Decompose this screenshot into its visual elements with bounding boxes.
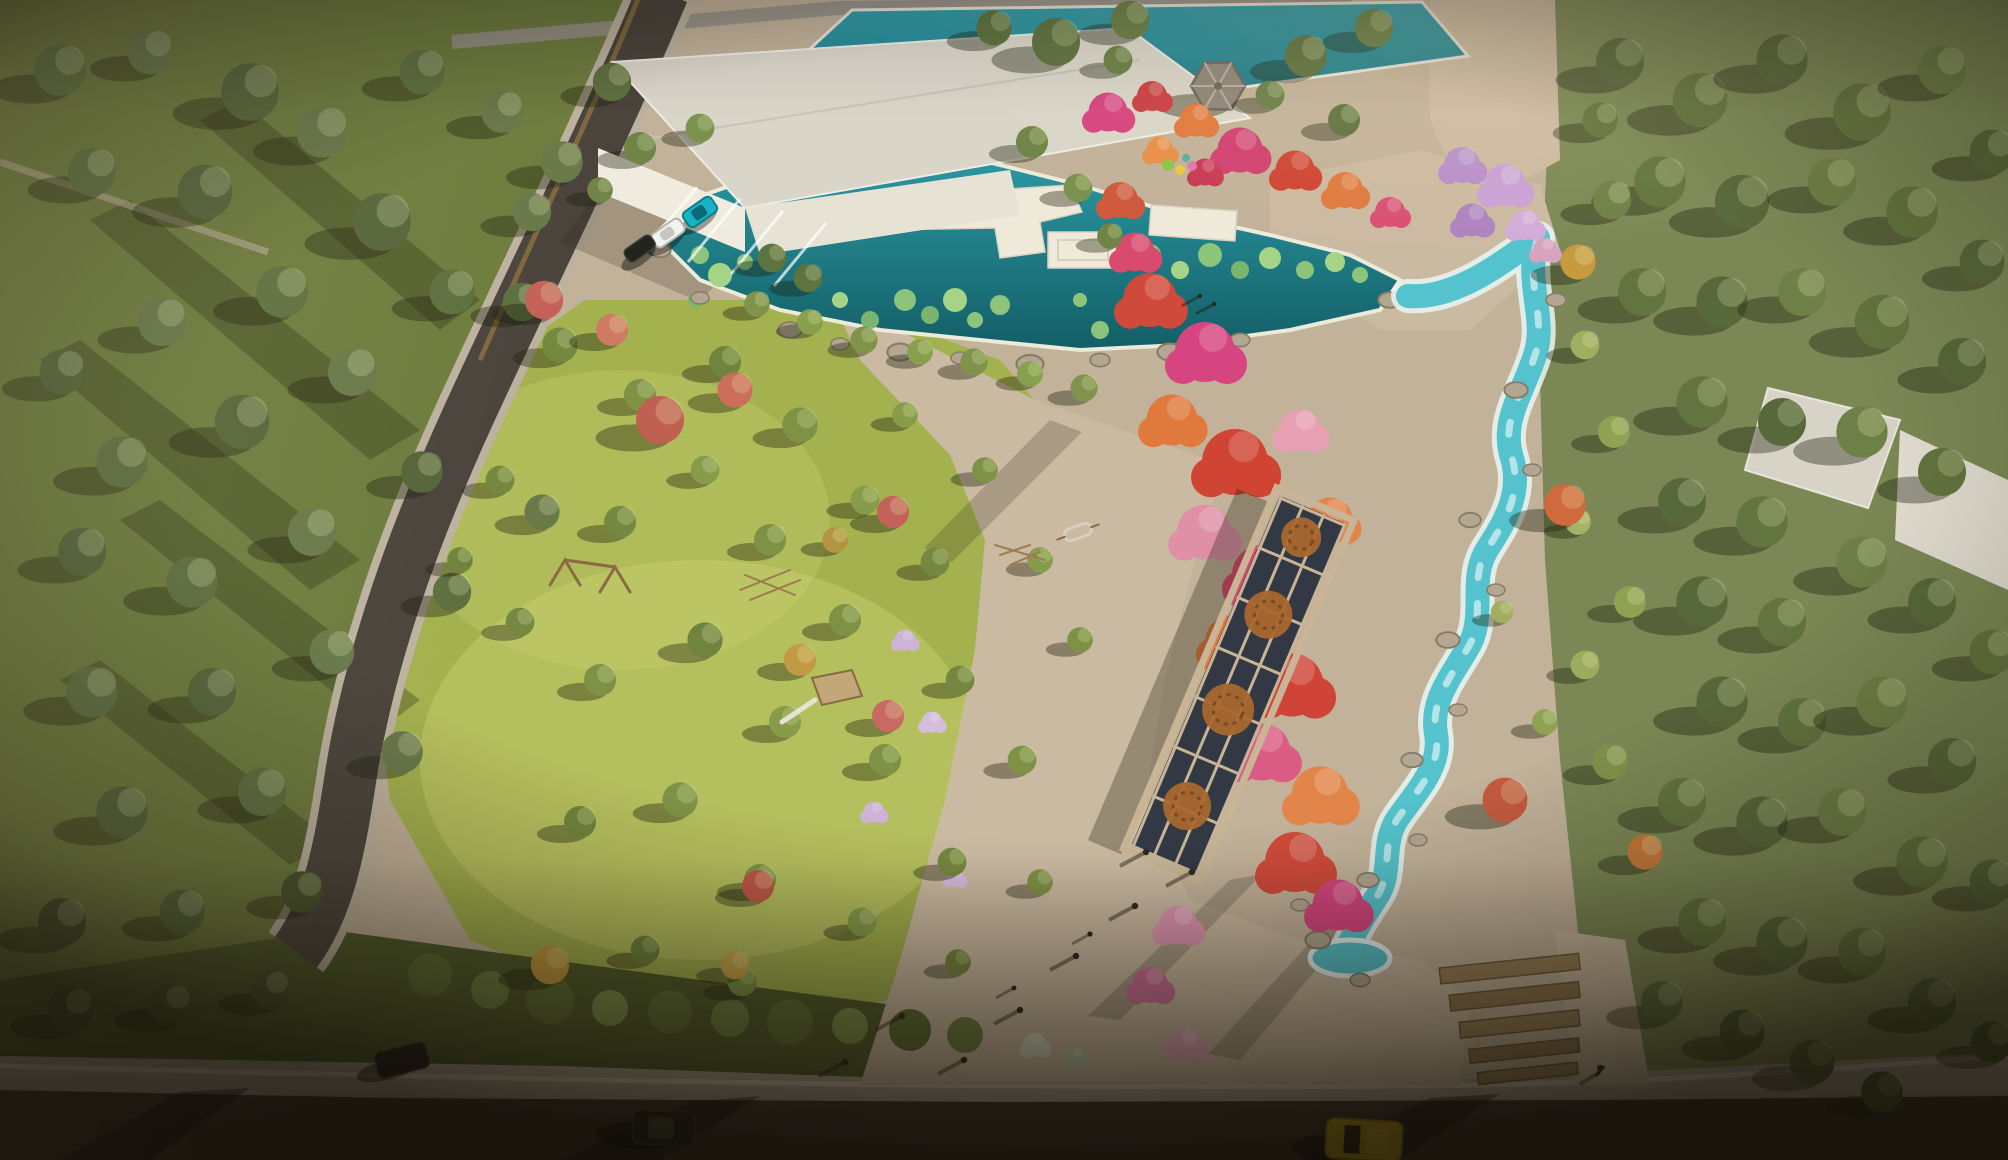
render-canvas xyxy=(0,0,2008,1160)
park-aerial-render xyxy=(0,0,2008,1160)
